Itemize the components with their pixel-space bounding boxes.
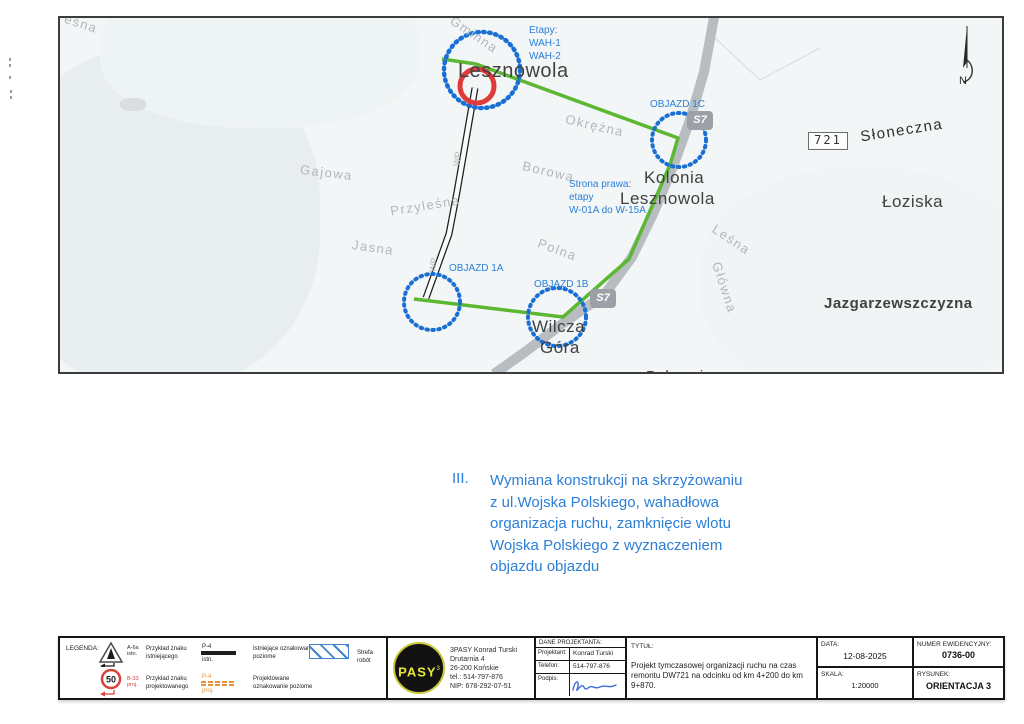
title-text: Projekt tymczasowej organizacji ruchu na…	[631, 661, 811, 691]
dw721-shield-icon: 721	[808, 132, 848, 150]
scan-artifact	[9, 76, 11, 79]
designer-row: Telefon: 514-797-876	[536, 660, 625, 673]
legend-label: Przykład znaku istniejącego	[146, 646, 204, 661]
objazd-1b-label: OBJAZD 1B	[534, 278, 588, 291]
marking-projected-code: P-4	[202, 674, 211, 681]
existing-marking-bar	[201, 651, 236, 655]
note-line: organizacja ruchu, zamknięcie wlotu	[490, 513, 742, 535]
scale-label: SKALA:	[821, 671, 844, 678]
marking-projected-suffix: proj.	[202, 688, 214, 695]
scale-cell: SKALA: 1:20000	[818, 668, 912, 697]
legend-cell: LEGENDA: A-6a istn. Przykład znaku istni…	[60, 638, 386, 698]
scanned-traffic-plan-page: { "colors": { "annotation_blue": "#2b7fd…	[0, 0, 1024, 724]
company-logo: PASY3	[393, 642, 445, 694]
drawing-label: RYSUNEK:	[917, 671, 950, 678]
north-needle	[963, 26, 967, 68]
projected-marking-bar	[201, 681, 236, 683]
designer-row-label: Projektant:	[536, 648, 570, 660]
etapy-line: Etapy:	[529, 24, 561, 37]
note-line: z ul.Wojska Polskiego, wahadłowa	[490, 492, 742, 514]
designer-row-value: Konrad Turski	[570, 648, 625, 660]
minor-road	[742, 147, 784, 149]
orientation-map: eśna Gminna Okrężna Borowa Gajowa Przyle…	[58, 16, 1004, 374]
designer-row-label: Podpis:	[536, 674, 570, 696]
marking-existing-suffix: istn.	[202, 657, 213, 664]
place-label-wilcza: Wilcza	[532, 317, 585, 337]
company-address: Drutarnia 4	[450, 655, 517, 664]
designer-row-label: Telefon:	[536, 661, 570, 673]
drawing-cell: RYSUNEK: ORIENTACJA 3	[914, 668, 1003, 697]
north-arrow-icon: N	[952, 22, 982, 94]
code-line: proj.	[127, 682, 139, 688]
sign-arrowhead	[100, 664, 105, 668]
etapy-line: WAH-2	[529, 50, 561, 63]
place-label-jazgarzewszczyzna: Jazgarzewszczyzna	[824, 295, 973, 312]
minor-road	[715, 38, 820, 80]
scan-artifact	[10, 96, 12, 99]
strona-prawa-note: Strona prawa: etapy W-01A do W-15A	[569, 178, 646, 217]
north-letter: N	[959, 75, 967, 87]
title-cell: TYTUŁ: Projekt tymczasowej organizacji r…	[625, 638, 816, 698]
signature-path	[573, 682, 616, 690]
note-line: Wojska Polskiego z wyznaczeniem	[490, 535, 742, 557]
date-scale-cell: DATA: 12-08-2025 SKALA: 1:20000	[816, 638, 912, 698]
place-label-gora: Góra	[540, 338, 580, 358]
drawing-value: ORIENTACJA 3	[914, 681, 1003, 691]
company-name: 3PASY Konrad Turski	[450, 646, 517, 655]
legend-label: Przykład znaku projektowanego	[146, 676, 204, 691]
designer-row-value: 514-797-876	[570, 661, 625, 673]
company-cell: PASY3 3PASY Konrad Turski Drutarnia 4 26…	[386, 638, 534, 698]
date-label: DATA:	[821, 641, 839, 648]
date-cell: DATA: 12-08-2025	[818, 638, 912, 668]
projected-marking-bar	[201, 684, 236, 686]
scale-value: 1:20000	[818, 681, 912, 690]
legend-label: Projektowane oznakowanie poziome	[253, 676, 325, 691]
strona-line: etapy	[569, 191, 646, 204]
code-line: istn.	[127, 651, 139, 657]
place-label-loziska: Łoziska	[882, 192, 943, 212]
speed-limit-sign-icon: 50	[97, 669, 125, 697]
marking-existing-code: P-4	[202, 644, 211, 651]
designer-row: Podpis:	[536, 673, 625, 696]
company-info: 3PASY Konrad Turski Drutarnia 4 26-200 K…	[450, 646, 517, 691]
scan-artifact	[9, 64, 11, 67]
scan-artifact	[10, 90, 12, 93]
strona-line: Strona prawa:	[569, 178, 646, 191]
number-label: NUMER EWIDENCYJNY:	[917, 641, 991, 648]
company-phone: tel.: 514-797-876	[450, 673, 517, 682]
place-label-lesznowola: Lesznowola	[458, 60, 569, 83]
company-nip: NIP: 678-292-07-51	[450, 682, 517, 691]
company-address: 26-200 Końskie	[450, 664, 517, 673]
legend-title: LEGENDA:	[66, 645, 99, 652]
strona-line: W-01A do W-15A	[569, 204, 646, 217]
signature-icon	[570, 675, 620, 695]
sign-projected-code: B-33 proj.	[127, 676, 139, 688]
date-value: 12-08-2025	[818, 651, 912, 661]
note-line: objazdu objazdu	[490, 556, 742, 578]
designer-row: Projektant: Konrad Turski	[536, 647, 625, 660]
s7-shield-icon: S7	[590, 289, 616, 308]
logo-sup: 3	[437, 666, 440, 672]
note-line: Wymiana konstrukcji na skrzyżowaniu	[490, 470, 742, 492]
sign-existing-code: A-6a istn.	[127, 645, 139, 657]
s7-shield-icon: S7	[687, 111, 713, 130]
place-label-bobrowiec: Bobrowiec	[646, 368, 721, 374]
sign-arrowhead	[100, 692, 105, 697]
note-text: Wymiana konstrukcji na skrzyżowaniu z ul…	[490, 470, 742, 578]
objazd-1a-label: OBJAZD 1A	[449, 262, 503, 275]
sign-value: 50	[106, 675, 116, 685]
title-label: TYTUŁ:	[631, 643, 653, 650]
logo-text: PASY	[398, 664, 436, 679]
legend-label: Strefa robót	[357, 650, 386, 665]
designer-cell: DANE PROJEKTANTA: Projektant: Konrad Tur…	[534, 638, 625, 698]
etapy-line: WAH-1	[529, 37, 561, 50]
title-block: LEGENDA: A-6a istn. Przykład znaku istni…	[58, 636, 1005, 700]
etapy-note: Etapy: WAH-1 WAH-2	[529, 24, 561, 63]
number-value: 0736-00	[914, 650, 1003, 660]
place-label-kolonia: Kolonia	[644, 168, 704, 188]
number-drawing-cell: NUMER EWIDENCYJNY: 0736-00 RYSUNEK: ORIE…	[912, 638, 1003, 698]
warning-sign-icon	[98, 641, 124, 667]
number-cell: NUMER EWIDENCYJNY: 0736-00	[914, 638, 1003, 668]
objazd-1c-label: OBJAZD 1C	[650, 98, 705, 111]
designer-header: DANE PROJEKTANTA:	[536, 638, 625, 647]
scan-artifact	[9, 58, 11, 61]
signature-area	[570, 674, 625, 696]
note-numeral: III.	[452, 470, 469, 487]
work-zone-swatch-icon	[309, 644, 349, 659]
